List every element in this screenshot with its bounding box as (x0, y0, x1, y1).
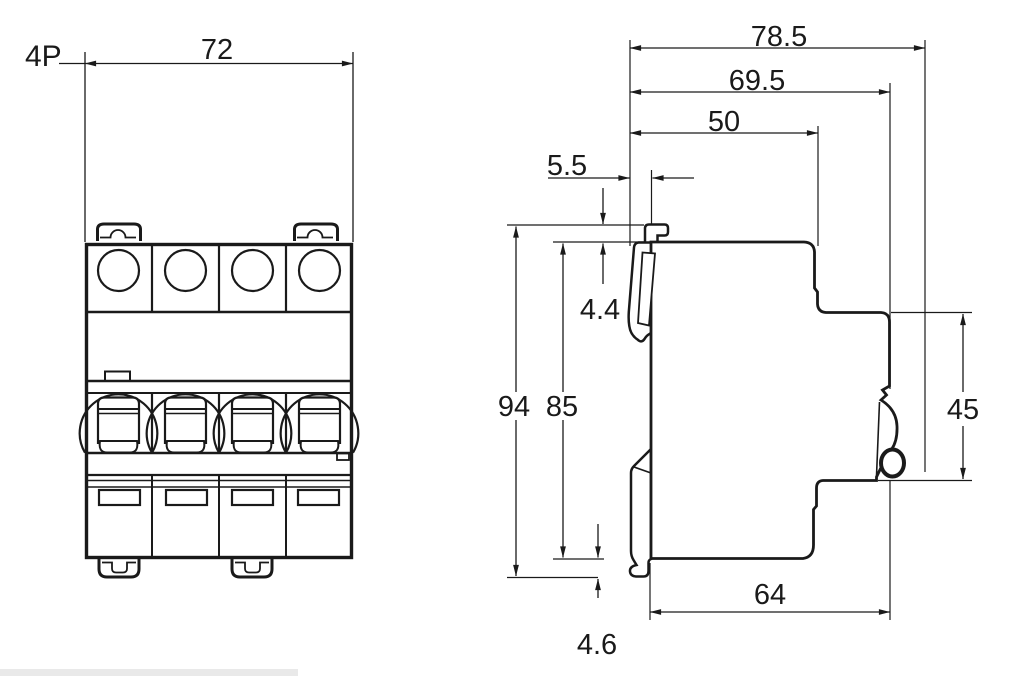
dim-label-overall-depth: 78.5 (751, 21, 807, 53)
din-clip-release-tab (630, 449, 651, 577)
side-view: 78.5 69.5 50 5.5 4.4 94 85 45 64 4.6 (498, 21, 979, 661)
toggle-handle (299, 398, 340, 445)
toggle-handle (232, 398, 273, 445)
dim-front-width (59, 52, 353, 242)
side-body-outline (651, 242, 897, 559)
front-view: 4P 72 (25, 34, 358, 577)
technical-drawing-page: 4P 72 (0, 0, 1020, 676)
toggle-tip (234, 441, 272, 453)
dim-label-bottom-clip-height: 4.6 (577, 629, 617, 661)
tab-outline (295, 224, 338, 241)
band-notch-left (105, 372, 130, 382)
dim-label-depth-without-handle: 69.5 (729, 65, 785, 97)
top-mounting-tab-left (98, 224, 141, 241)
toggle-handle (165, 398, 206, 445)
dim-label-top-clip-height: 4.4 (580, 294, 620, 326)
dim-label-upper-depth: 50 (708, 106, 740, 138)
toggle-section (80, 393, 359, 460)
dim-label-body-height: 85 (546, 391, 578, 423)
din-latch-loop (881, 450, 904, 477)
toggle-handle (98, 398, 139, 445)
adjacent-panel-edge (0, 669, 298, 676)
pole-count-label: 4P (25, 40, 62, 73)
bottom-mounting-foot-left (99, 559, 139, 577)
toggle-tip (301, 441, 339, 453)
dim-label-din-recess: 45 (947, 394, 979, 426)
top-mounting-tab-right (295, 224, 338, 241)
toggle-tip (167, 441, 205, 453)
band-notch-right (337, 454, 349, 461)
tab-outline (98, 224, 141, 241)
bottom-mounting-foot-right (232, 559, 272, 577)
dim-label-overall-height: 94 (498, 391, 530, 423)
dim-label-front-width: 72 (201, 34, 233, 66)
circuit-breaker-dimension-drawing: 4P 72 (0, 0, 1020, 676)
dim-label-lower-depth: 64 (754, 579, 786, 611)
dim-label-handle-protrusion: 5.5 (547, 150, 587, 182)
top-clip-tab-side (645, 225, 668, 243)
toggle-tip (100, 441, 138, 453)
